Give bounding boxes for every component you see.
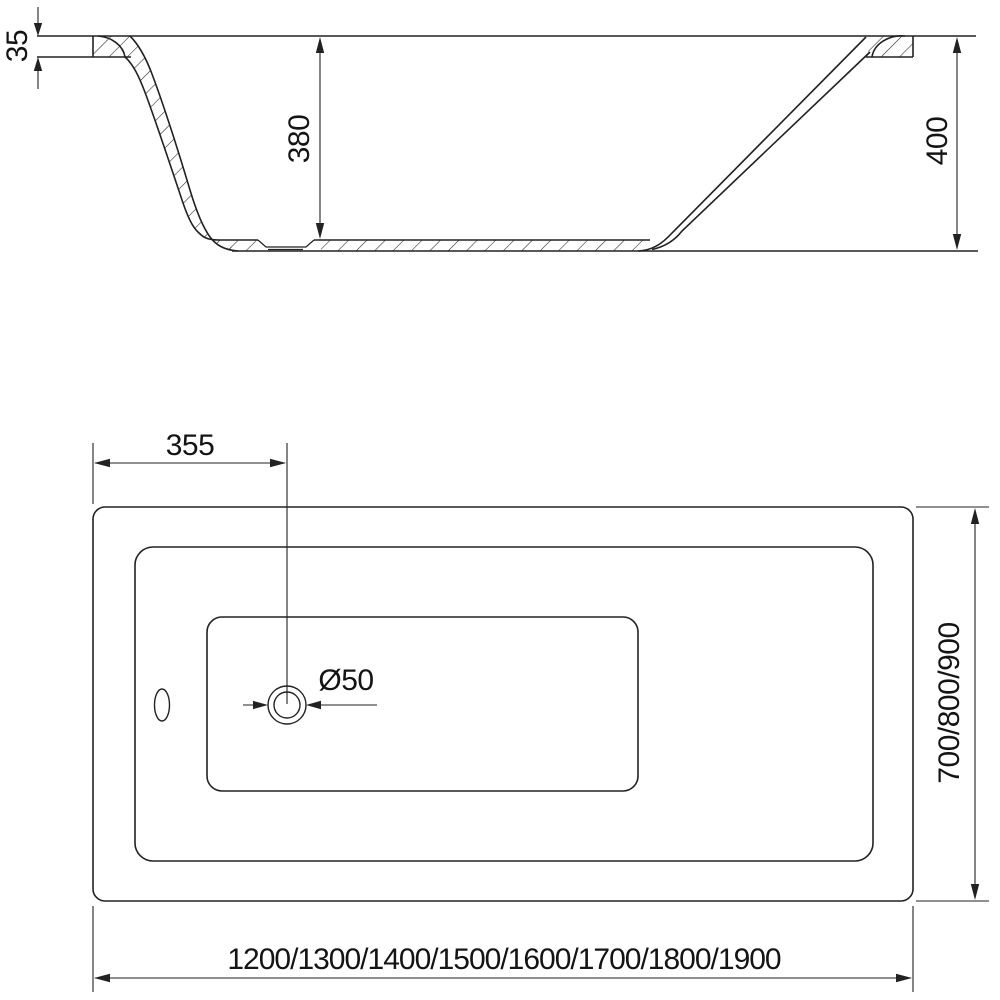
overflow-hole — [155, 689, 170, 721]
dim-label-inner-depth: 380 — [285, 115, 315, 164]
dim-drain-diameter-lines — [243, 701, 377, 709]
tub-inner-rim-rect — [135, 547, 873, 861]
tub-outer-rim-rect — [93, 507, 913, 901]
dim-drain-offset-lines — [93, 443, 287, 704]
technical-drawing-canvas: 35 380 400 355 Ø50 700/800/900 1200/1300… — [0, 0, 1000, 1000]
drawing-linework — [0, 0, 1000, 1000]
dim-inner-depth-lines — [316, 37, 324, 239]
dim-rim-thickness-lines — [34, 7, 42, 89]
dim-label-width-options: 700/800/900 — [935, 622, 965, 783]
right-wall-outer — [638, 37, 866, 251]
side-section-view — [34, 7, 978, 251]
dim-label-length-options: 1200/1300/1400/1500/1600/1700/1800/1900 — [227, 945, 780, 975]
dim-label-total-height: 400 — [923, 117, 953, 166]
dim-label-rim-thickness: 35 — [3, 30, 33, 62]
plan-view — [93, 443, 989, 992]
drain-recess — [258, 240, 314, 250]
section-hatching — [93, 36, 913, 251]
dim-label-drain-offset: 355 — [166, 431, 215, 461]
tub-basin-bottom-rect — [207, 617, 638, 791]
dim-total-height-lines — [953, 37, 961, 250]
dim-label-drain-diameter: Ø50 — [318, 666, 373, 696]
